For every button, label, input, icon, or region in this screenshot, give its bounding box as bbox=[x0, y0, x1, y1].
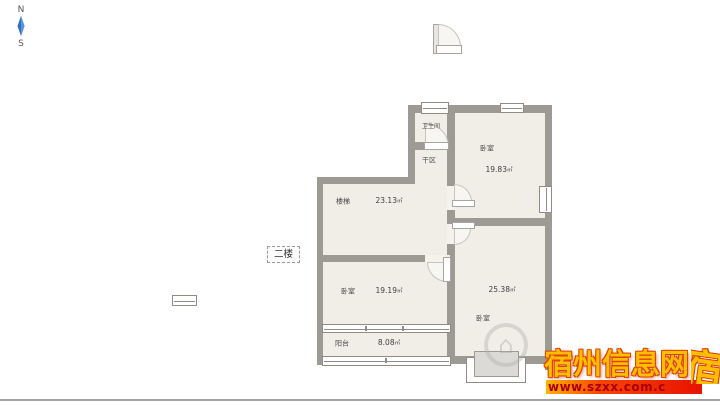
window-mullion bbox=[174, 301, 195, 302]
watermark-edge-fragment: 宿 bbox=[691, 337, 720, 384]
house-icon: ⌂ bbox=[498, 331, 513, 359]
room-fill-stairs bbox=[322, 182, 451, 258]
compass-south-label: S bbox=[8, 40, 34, 49]
window-symbol-detached bbox=[172, 295, 197, 306]
window-top-1 bbox=[421, 102, 449, 114]
window-band-balcony bbox=[322, 324, 451, 333]
bathroom-door-leaf bbox=[424, 142, 449, 150]
bedroom-se-door-leaf bbox=[452, 222, 475, 229]
compass-north-label: N bbox=[8, 6, 34, 15]
window-tick bbox=[385, 358, 387, 363]
label-balcony: 阳台 bbox=[335, 341, 349, 348]
label-bathroom: 卫生间 bbox=[422, 124, 440, 130]
label-bedroom-se: 卧室 bbox=[476, 316, 490, 323]
wall-segment bbox=[317, 255, 425, 262]
label-dry-area: 干区 bbox=[422, 158, 436, 165]
area-bedroom-se: 25.38㎡ bbox=[489, 286, 516, 294]
watermark-url: www.szxx.com.c bbox=[546, 380, 702, 394]
wall-segment bbox=[317, 177, 415, 184]
door-leaf bbox=[436, 45, 462, 54]
label-bedroom-w: 卧室 bbox=[341, 289, 355, 296]
site-logo-watermark: ⌂ bbox=[484, 323, 528, 367]
wall-segment bbox=[408, 142, 425, 150]
floor-tag: 二楼 bbox=[267, 246, 300, 263]
door-swing-arc-icon bbox=[438, 24, 461, 47]
window-tick bbox=[365, 326, 367, 331]
area-balcony: 8.08㎡ bbox=[378, 339, 400, 347]
bedroom-ne-door-leaf bbox=[452, 200, 475, 207]
window-tick bbox=[402, 326, 404, 331]
window-top-2 bbox=[500, 103, 524, 113]
floorplan-page: N S 二楼 bbox=[0, 0, 720, 405]
compass: N S bbox=[8, 6, 34, 50]
window-right bbox=[539, 186, 552, 213]
label-stairs: 楼梯 bbox=[336, 199, 350, 206]
area-bedroom-ne: 19.83㎡ bbox=[486, 166, 513, 174]
watermark-site-name: 宿州信息网 bbox=[544, 344, 694, 384]
wall-segment bbox=[545, 105, 552, 370]
area-bedroom-w: 19.19㎡ bbox=[376, 287, 403, 295]
area-stairs: 23.13㎡ bbox=[376, 197, 403, 205]
compass-needle-icon bbox=[8, 15, 34, 37]
bedroom-w-door-leaf bbox=[443, 257, 451, 282]
label-bedroom-ne: 卧室 bbox=[480, 146, 494, 153]
bottom-divider bbox=[0, 399, 720, 401]
wall-segment bbox=[317, 177, 323, 365]
